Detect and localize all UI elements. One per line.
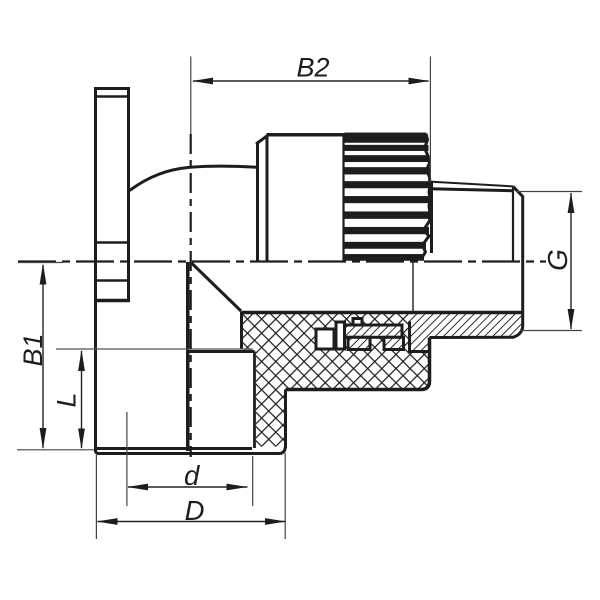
svg-text:B2: B2 <box>296 53 329 83</box>
svg-text:d: d <box>184 460 201 491</box>
svg-text:L: L <box>52 392 82 407</box>
svg-text:D: D <box>185 495 205 526</box>
svg-text:G: G <box>542 249 573 271</box>
svg-text:B1: B1 <box>18 333 48 366</box>
